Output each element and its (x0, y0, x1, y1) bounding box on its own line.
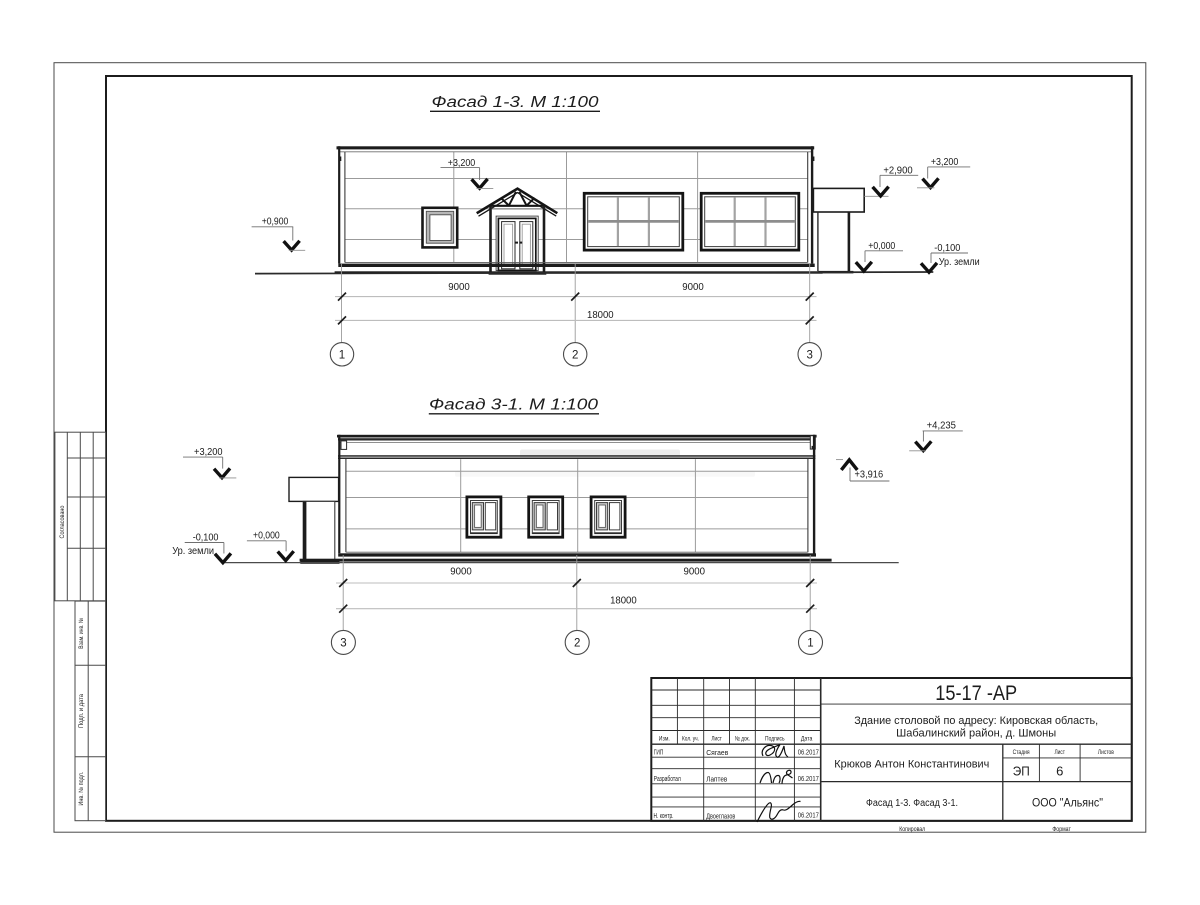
svg-text:Ур. земли: Ур. земли (939, 257, 980, 268)
svg-text:+3,200: +3,200 (931, 157, 959, 168)
svg-text:ООО "Альянс": ООО "Альянс" (1032, 796, 1103, 810)
svg-text:Дата: Дата (801, 736, 813, 743)
svg-text:+0,000: +0,000 (253, 531, 280, 542)
svg-text:+3,200: +3,200 (194, 447, 223, 458)
svg-text:Фасад 1-3. Фасад 3-1.: Фасад 1-3. Фасад 3-1. (866, 798, 958, 809)
svg-text:2: 2 (574, 638, 580, 650)
svg-text:Лаптев: Лаптев (706, 774, 727, 783)
svg-text:Здание столовой по адресу: Кир: Здание столовой по адресу: Кировская обл… (854, 715, 1098, 727)
svg-text:3: 3 (340, 638, 346, 650)
svg-text:ГИП: ГИП (654, 748, 664, 757)
svg-text:06.2017: 06.2017 (798, 748, 819, 757)
svg-text:Сягаев: Сягаев (706, 748, 728, 757)
svg-text:15-17 -АР: 15-17 -АР (935, 682, 1017, 705)
svg-text:Копировал: Копировал (899, 826, 925, 833)
svg-text:Формат: Формат (1052, 826, 1071, 833)
svg-text:9000: 9000 (682, 282, 704, 293)
svg-text:18000: 18000 (610, 596, 637, 607)
svg-text:6: 6 (1056, 763, 1063, 778)
svg-text:+0,900: +0,900 (262, 217, 289, 228)
svg-text:Согласовано: Согласовано (59, 505, 66, 538)
svg-text:Шабалинский район, д. Шмоны: Шабалинский район, д. Шмоны (896, 727, 1056, 739)
svg-text:Изм.: Изм. (659, 736, 670, 743)
svg-text:Двоеглазов: Двоеглазов (706, 811, 735, 820)
svg-text:9000: 9000 (448, 282, 470, 293)
svg-text:Разработал: Разработал (654, 774, 681, 783)
svg-text:Ур. земли: Ур. земли (172, 546, 214, 557)
svg-text:Листов: Листов (1098, 749, 1115, 756)
svg-text:+4,235: +4,235 (927, 421, 956, 432)
svg-text:ЭП: ЭП (1013, 763, 1030, 778)
svg-text:06.2017: 06.2017 (798, 774, 819, 783)
svg-text:Стадия: Стадия (1013, 749, 1030, 756)
svg-text:Крюков Антон Константинович: Крюков Антон Константинович (834, 759, 989, 771)
svg-text:Инв. № подл.: Инв. № подл. (78, 771, 85, 805)
svg-text:Лист: Лист (1054, 749, 1065, 756)
svg-text:9000: 9000 (684, 567, 706, 578)
svg-text:Н. контр.: Н. контр. (654, 811, 674, 820)
svg-text:18000: 18000 (587, 310, 614, 321)
svg-text:3: 3 (806, 349, 812, 361)
svg-text:+2,900: +2,900 (883, 165, 913, 176)
svg-text:1: 1 (807, 638, 813, 650)
svg-text:-0,100: -0,100 (193, 532, 219, 543)
svg-text:Кол. уч.: Кол. уч. (682, 736, 699, 743)
svg-text:Фасад 1-3. М 1:100: Фасад 1-3. М 1:100 (432, 94, 599, 111)
svg-text:1: 1 (339, 349, 345, 361)
svg-text:9000: 9000 (450, 567, 472, 578)
svg-text:2: 2 (572, 349, 578, 361)
svg-text:Лист: Лист (711, 736, 722, 743)
svg-text:Фасад 3-1. М 1:100: Фасад 3-1. М 1:100 (429, 396, 598, 413)
svg-text:+3,916: +3,916 (855, 470, 884, 481)
svg-text:06.2017: 06.2017 (798, 811, 819, 820)
svg-text:Подпись: Подпись (765, 736, 785, 743)
svg-text:Взам. инв. №: Взам. инв. № (78, 618, 85, 649)
svg-text:Подп. и дата: Подп. и дата (78, 694, 85, 728)
svg-text:№ док.: № док. (735, 736, 750, 743)
